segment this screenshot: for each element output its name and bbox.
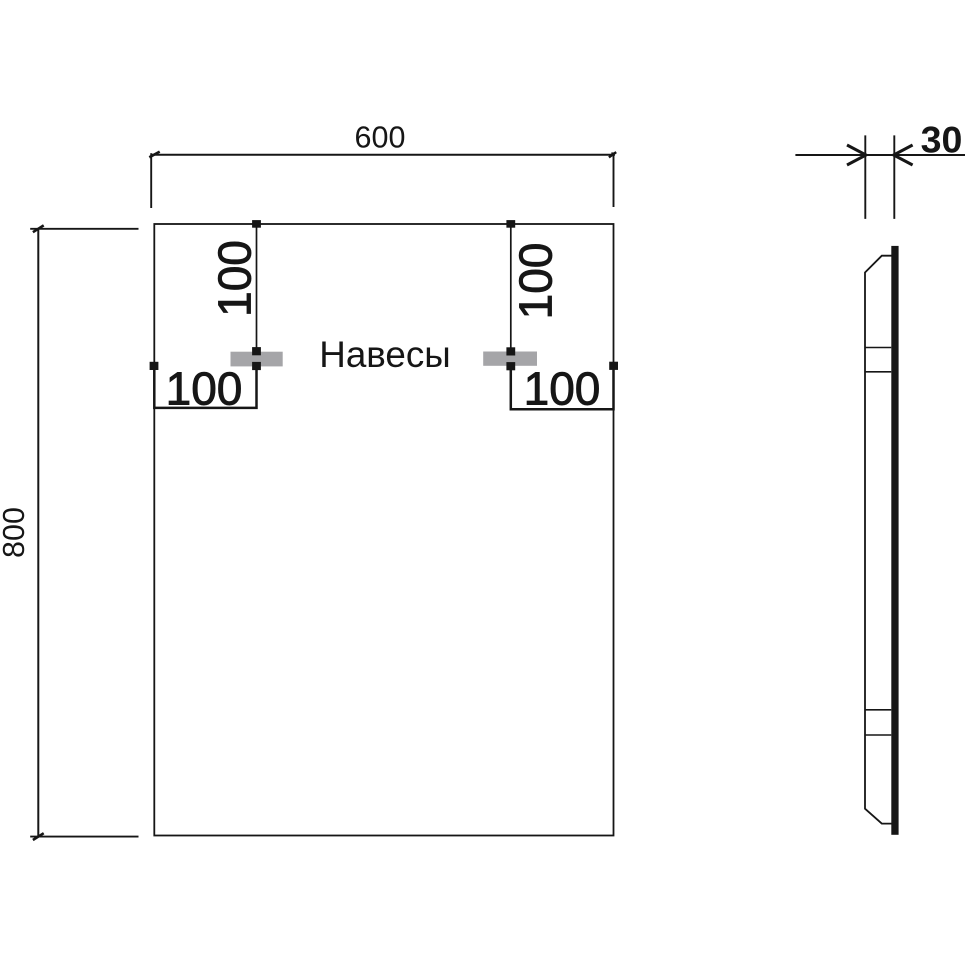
svg-text:600: 600 — [355, 121, 406, 155]
svg-text:100: 100 — [166, 363, 243, 415]
svg-text:100: 100 — [510, 243, 562, 320]
svg-text:30: 30 — [921, 118, 963, 160]
svg-text:Навесы: Навесы — [319, 334, 450, 375]
svg-text:800: 800 — [0, 507, 31, 558]
svg-text:100: 100 — [524, 363, 601, 415]
svg-text:100: 100 — [209, 240, 261, 317]
